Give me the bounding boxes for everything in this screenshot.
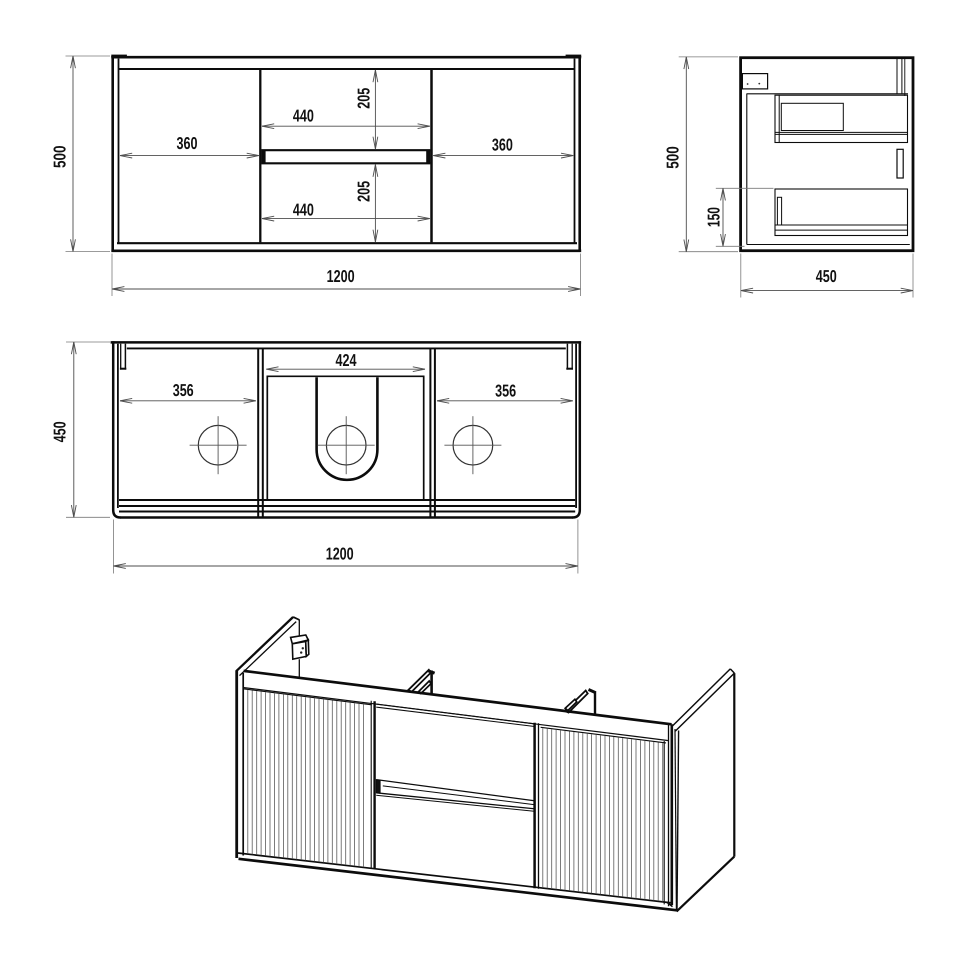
svg-text:500: 500 [662,146,682,169]
svg-text:360: 360 [177,133,198,153]
svg-text:205: 205 [354,181,374,202]
svg-text:150: 150 [704,207,724,227]
svg-text:356: 356 [173,380,194,400]
svg-text:205: 205 [354,87,374,108]
svg-text:424: 424 [336,350,357,370]
svg-text:500: 500 [49,145,69,168]
svg-text:450: 450 [816,266,837,286]
svg-text:440: 440 [293,200,314,220]
svg-text:450: 450 [50,421,70,442]
svg-text:1200: 1200 [327,266,355,286]
svg-text:360: 360 [492,135,513,155]
svg-text:1200: 1200 [326,543,354,563]
svg-text:356: 356 [495,380,516,400]
svg-text:440: 440 [293,106,314,126]
